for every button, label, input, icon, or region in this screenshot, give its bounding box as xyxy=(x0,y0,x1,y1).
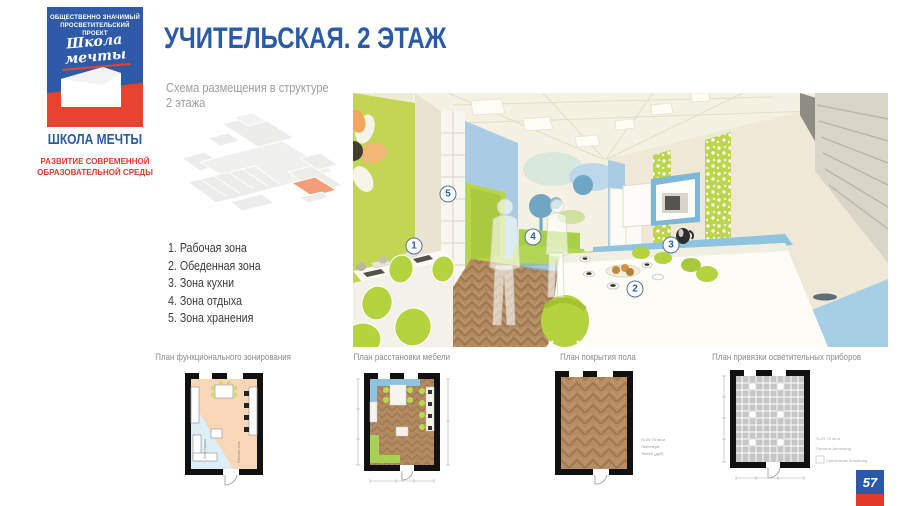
plan-caption-floor: План покрытия пола xyxy=(503,352,693,362)
floor-area-note: S=29,70 кв.м xyxy=(641,437,665,442)
render-marker-4: 4 xyxy=(525,229,542,246)
plan-thumb-functional-zoning: Зона отдыха Рабочая зона xyxy=(185,371,263,489)
render-marker-1: 1 xyxy=(406,238,423,255)
floor-material-note: Линолеум xyxy=(641,444,660,449)
light-fixture-swatch xyxy=(816,456,824,463)
page-number-badge: 57 xyxy=(856,470,884,494)
zone-list-item: 2. Обеденная зона xyxy=(168,259,277,277)
plan-caption-zoning: План функционального зонирования xyxy=(128,352,318,362)
zone-label-rest: Зона отдыха xyxy=(203,439,207,459)
slide-root: ОБЩЕСТВЕННО ЗНАЧИМЫЙПРОСВЕТИТЕЛЬСКИЙ ПРО… xyxy=(0,0,900,506)
logo-building-icon xyxy=(47,65,143,127)
render-marker-2: 2 xyxy=(627,281,644,298)
zone-list-item: 4. Зона отдыха xyxy=(168,294,277,312)
plan-thumb-furniture xyxy=(352,369,454,491)
project-logo: ОБЩЕСТВЕННО ЗНАЧИМЫЙПРОСВЕТИТЕЛЬСКИЙ ПРО… xyxy=(47,7,143,127)
page-title: УЧИТЕЛЬСКАЯ. 2 ЭТАЖ xyxy=(164,22,517,56)
render-marker-5: 5 xyxy=(440,186,457,203)
plan-thumb-floor-covering: S=29,70 кв.м Линолеум Tarkett (дуб) xyxy=(553,369,698,485)
floor-brand-note: Tarkett (дуб) xyxy=(641,451,664,456)
zone-list-item: 5. Зона хранения xyxy=(168,311,277,329)
room-render-drawing xyxy=(353,93,888,347)
zone-list-item: 1. Рабочая зона xyxy=(168,241,277,259)
page-number-red-bar xyxy=(856,494,884,506)
render-marker-3: 3 xyxy=(663,237,680,254)
brand-name: ШКОЛА МЕЧТЫ xyxy=(15,131,175,148)
floor-location-diagram xyxy=(170,108,345,234)
zone-label-work: Рабочая зона xyxy=(237,442,241,463)
zone-list-item: 3. Зона кухни xyxy=(168,276,277,294)
lighting-ceiling-note: Потолок Armstrong xyxy=(816,446,851,451)
zone-list: 1. Рабочая зона 2. Обеденная зона 3. Зон… xyxy=(168,241,277,329)
plan-caption-lighting: План привязки осветительных приборов xyxy=(692,352,882,362)
room-render: 1 2 3 4 5 xyxy=(353,93,888,347)
lighting-fixture-note: Светильник Armstrong xyxy=(826,458,867,463)
plan-caption-furniture: План расстановки мебели xyxy=(307,352,497,362)
brand-subtitle: РАЗВИТИЕ СОВРЕМЕННОЙОБРАЗОВАТЕЛЬНОЙ СРЕД… xyxy=(15,156,175,178)
lighting-area-note: S=29,70 кв.м xyxy=(816,436,840,441)
page-subtitle: Схема размещения в структуре 2 этажа xyxy=(166,80,357,110)
